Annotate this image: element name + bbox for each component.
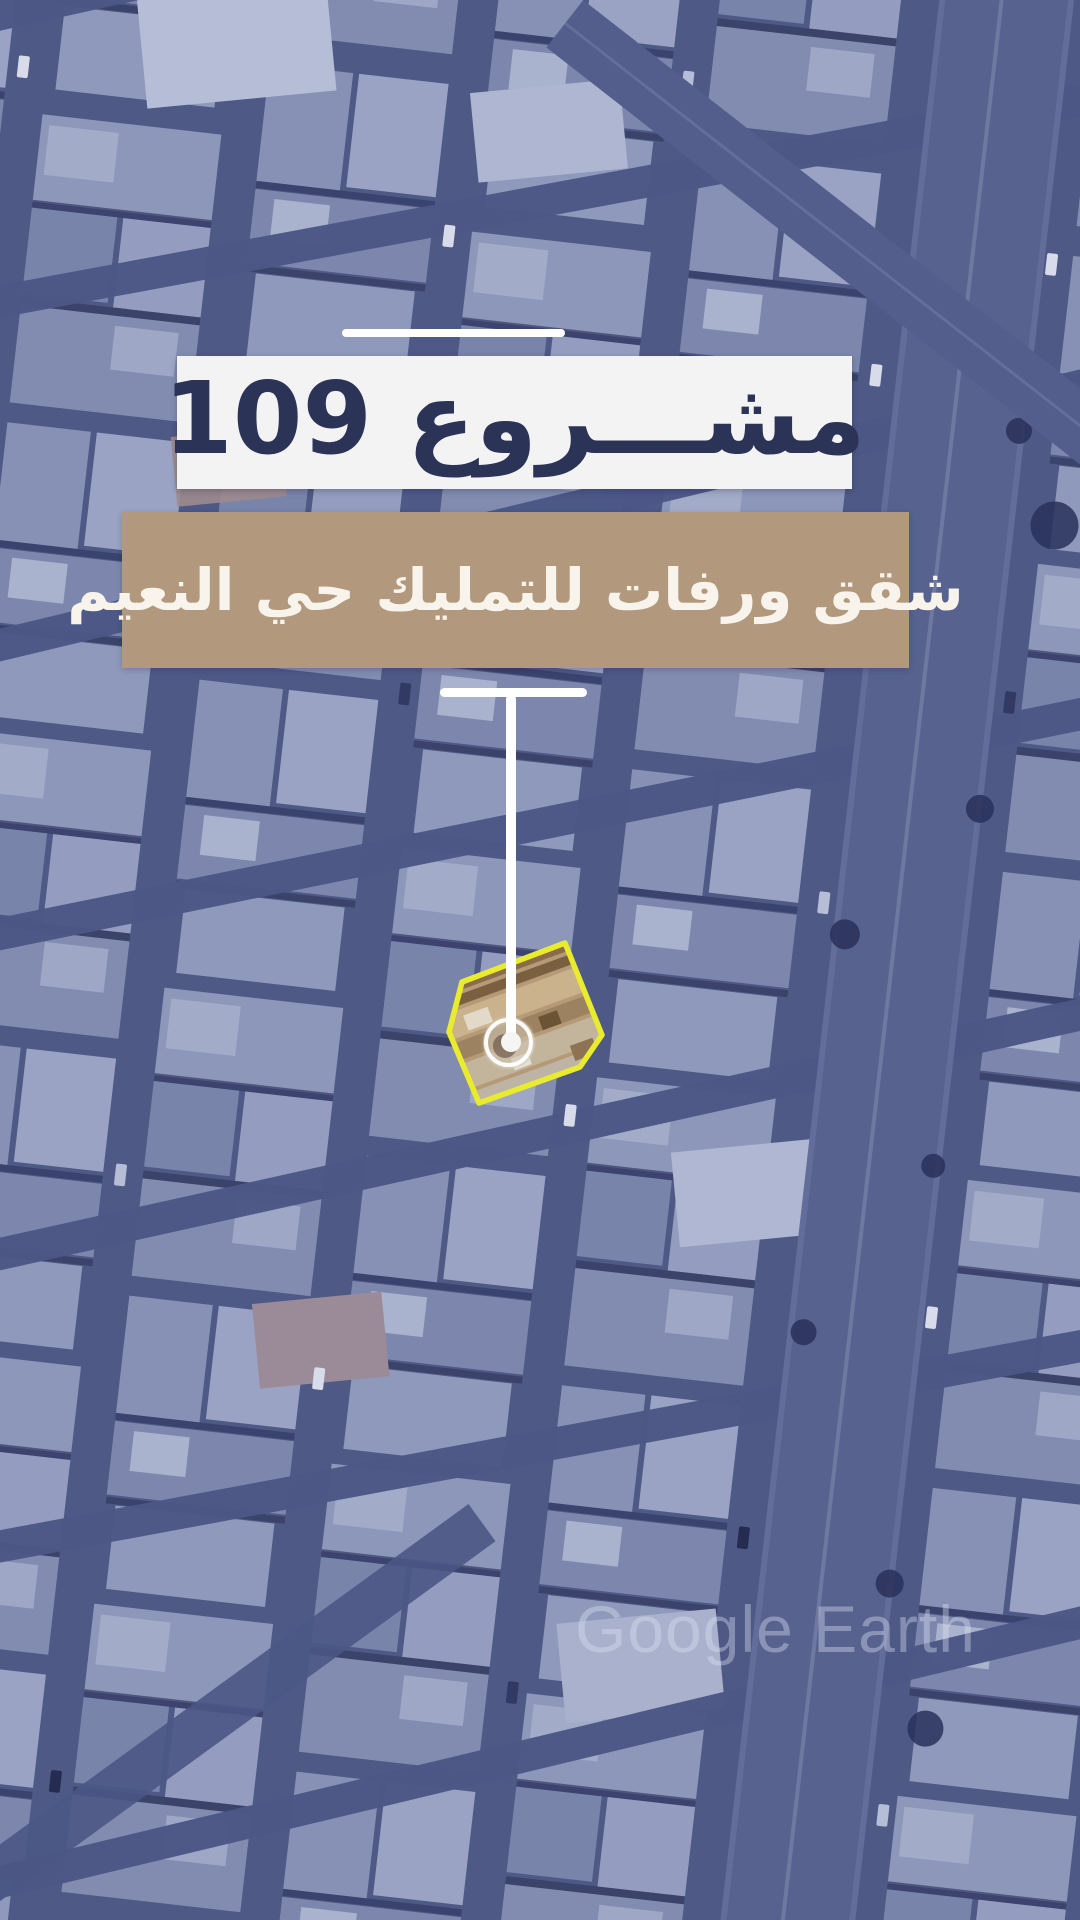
banner-pointer-line <box>440 688 587 697</box>
google-earth-watermark: Google Earth <box>575 1592 976 1666</box>
project-title-banner: مشـــروع 109 <box>177 356 852 489</box>
subtitle-banner: شقق ورفات للتمليك حي النعيم <box>122 512 909 668</box>
subtitle-text: شقق ورفات للتمليك حي النعيم <box>67 561 963 619</box>
satellite-map: Google Earth <box>0 0 1080 1920</box>
project-title-text: مشـــروع 109 <box>163 369 865 469</box>
marker-dot-icon <box>501 1032 521 1052</box>
leader-line-vertical <box>506 694 516 1040</box>
top-divider-line <box>342 329 565 337</box>
promo-frame: Google Earth <box>0 0 1080 1920</box>
